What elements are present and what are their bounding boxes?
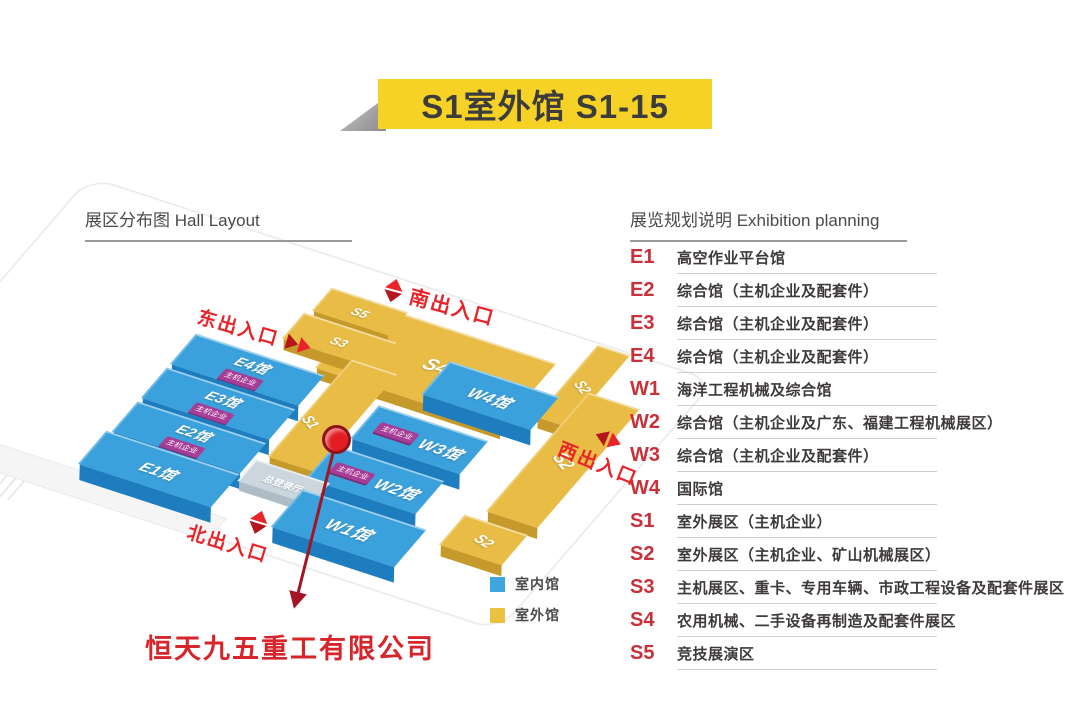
- planning-row-s3: S3主机展区、重卡、专用车辆、市政工程设备及配套件展区: [630, 571, 1080, 604]
- hall-description: 国际馆: [677, 478, 724, 499]
- planning-row-e1: E1高空作业平台馆: [630, 241, 1080, 274]
- callout-arrowhead-icon: [285, 590, 307, 611]
- hall-code: S1: [630, 510, 677, 533]
- north-entrance-arrows-icon: [246, 508, 270, 536]
- hall-code: S3: [630, 576, 677, 599]
- hall-label-s3: S3: [327, 334, 351, 350]
- hall-description: 海洋工程机械及综合馆: [677, 379, 832, 400]
- hall-description: 竞技展演区: [677, 643, 755, 664]
- planning-row-w4: W4国际馆: [630, 472, 1080, 505]
- hall-code: S5: [630, 642, 677, 665]
- hall-code: W1: [630, 378, 677, 401]
- hall-description: 综合馆（主机企业及配套件）: [677, 280, 879, 301]
- hall-description: 室外展区（主机企业、矿山机械展区）: [677, 544, 941, 565]
- hall-label-s5: S5: [348, 305, 372, 321]
- hall-code: E4: [630, 345, 677, 368]
- outdoor-color-swatch: [490, 608, 505, 623]
- hall-description: 高空作业平台馆: [677, 247, 786, 268]
- legend-label-indoor: 室内馆: [515, 574, 560, 594]
- page-title-banner: S1室外馆 S1-15: [378, 79, 712, 129]
- exhibitor-company-name: 恒天九五重工有限公司: [140, 627, 440, 666]
- hall-code: E3: [630, 312, 677, 335]
- hall-description: 综合馆（主机企业及配套件）: [677, 313, 879, 334]
- hall-code: E1: [630, 246, 677, 269]
- hall-label-w1: W1馆: [320, 513, 379, 546]
- planning-row-e2: E2综合馆（主机企业及配套件）: [630, 274, 1080, 307]
- hall-label-w3: W3馆: [414, 432, 470, 463]
- hall-code: E2: [630, 279, 677, 302]
- planning-row-e3: E3综合馆（主机企业及配套件）: [630, 307, 1080, 340]
- map-legend: 室内馆 室外馆: [490, 574, 560, 636]
- planning-row-e4: E4综合馆（主机企业及配套件）: [630, 340, 1080, 373]
- legend-item-indoor: 室内馆: [490, 574, 560, 594]
- hall-label-s2: S2: [470, 531, 498, 550]
- hall-description: 综合馆（主机企业及广东、福建工程机械展区）: [677, 412, 1003, 433]
- hall-code: W2: [630, 411, 677, 434]
- planning-row-w1: W1海洋工程机械及综合馆: [630, 373, 1080, 406]
- planning-row-s4: S4农用机械、二手设备再制造及配套件展区: [630, 604, 1080, 637]
- planning-row-w3: W3综合馆（主机企业及配套件）: [630, 439, 1080, 472]
- exhibition-map-page: S1室外馆 S1-15 展区分布图 Hall Layout 展览规划说明 Exh…: [0, 0, 1080, 727]
- planning-row-s5: S5竞技展演区: [630, 637, 1080, 670]
- indoor-color-swatch: [490, 577, 505, 592]
- hall-layout-heading: 展区分布图 Hall Layout: [85, 206, 352, 242]
- exhibition-planning-list: E1高空作业平台馆 E2综合馆（主机企业及配套件） E3综合馆（主机企业及配套件…: [630, 241, 1080, 670]
- hall-description: 农用机械、二手设备再制造及配套件展区: [677, 610, 956, 631]
- hall-description: 主机展区、重卡、专用车辆、市政工程设备及配套件展区: [677, 577, 1065, 598]
- hall-description: 室外展区（主机企业）: [677, 511, 832, 532]
- legend-item-outdoor: 室外馆: [490, 605, 560, 625]
- planning-row-s1: S1室外展区（主机企业）: [630, 505, 1080, 538]
- planning-row-w2: W2综合馆（主机企业及广东、福建工程机械展区）: [630, 406, 1080, 439]
- hall-label-w4: W4馆: [463, 381, 519, 412]
- east-entrance-arrows-icon: [285, 333, 313, 355]
- planning-row-s2: S2室外展区（主机企业、矿山机械展区）: [630, 538, 1080, 571]
- hall-label-e1: E1馆: [135, 456, 184, 484]
- hall-code: W4: [630, 477, 677, 500]
- hall-code: S4: [630, 609, 677, 632]
- hall-description: 综合馆（主机企业及配套件）: [677, 445, 879, 466]
- hall-code: S2: [630, 543, 677, 566]
- hall-label-s1: S1: [298, 412, 323, 430]
- location-pin-s1: [322, 425, 351, 454]
- hall-badge: 主机企业: [329, 462, 376, 484]
- hall-label-w2: W2馆: [369, 472, 425, 503]
- legend-label-outdoor: 室外馆: [515, 605, 560, 625]
- hall-badge: 主机企业: [373, 422, 420, 444]
- exhibition-planning-heading: 展览规划说明 Exhibition planning: [630, 206, 907, 242]
- hall-description: 综合馆（主机企业及配套件）: [677, 346, 879, 367]
